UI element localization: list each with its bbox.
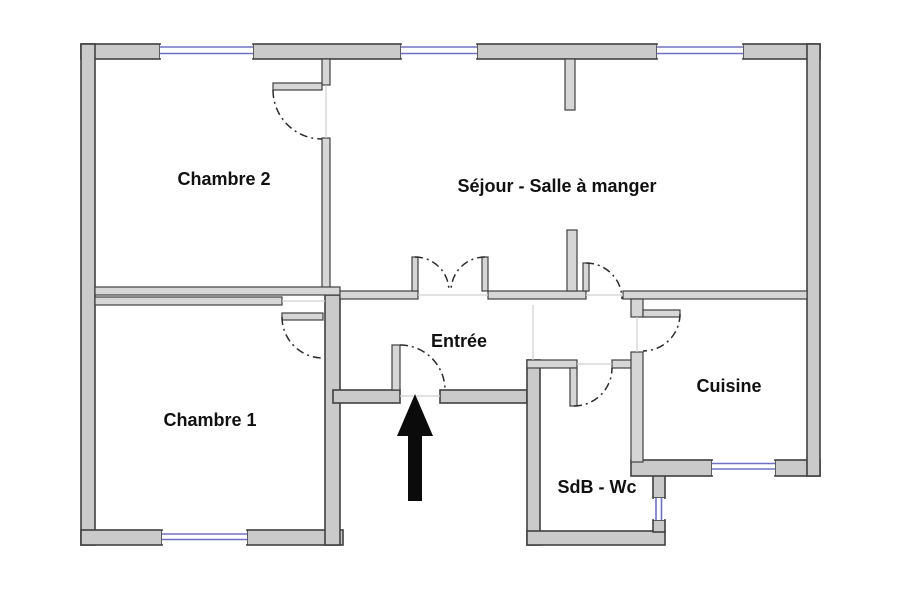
- room-label-chambre2: Chambre 2: [177, 169, 270, 189]
- door-swing-arc-entrance: [400, 345, 445, 390]
- room-label-cuisine: Cuisine: [696, 376, 761, 396]
- door-leaf-kitchen: [643, 310, 680, 317]
- interior-wall-kitchen-west: [631, 352, 643, 462]
- room-label-entree: Entrée: [431, 331, 487, 351]
- interior-wall-sejour-stub-top: [565, 59, 575, 110]
- exterior-wall-sdb-east: [653, 520, 665, 532]
- interior-wall-entree-north: [340, 291, 418, 299]
- door-leaf-double-east: [482, 257, 488, 291]
- interior-wall-chambre2-south: [95, 287, 340, 295]
- door-swing-arc-sdb: [574, 368, 612, 406]
- door-swing-arc-double-west: [415, 257, 449, 291]
- exterior-wall-bottom: [81, 530, 162, 545]
- exterior-wall-sdb-west: [527, 360, 540, 545]
- window: [654, 498, 664, 520]
- exterior-wall-top: [477, 44, 657, 59]
- interior-wall-chambre2-sejour: [322, 138, 330, 288]
- door-swing-arc-chambre1: [282, 317, 323, 358]
- interior-wall-entree-north: [488, 291, 586, 299]
- door-swing-arc-sejour-east: [586, 263, 622, 299]
- interior-wall-sejour-stub-bottom: [567, 230, 577, 291]
- door-leaf-chambre1: [282, 313, 323, 320]
- door-swing-arc-chambre2: [273, 90, 322, 139]
- exterior-wall-left: [81, 44, 95, 545]
- exterior-wall-sdb-bottom: [527, 531, 665, 545]
- door-leaf-sejour-east: [583, 263, 589, 291]
- window: [162, 531, 247, 544]
- exterior-wall-entree-south: [440, 390, 527, 403]
- door-leaf-chambre2: [273, 83, 322, 90]
- floor-plan: Chambre 2 Séjour - Salle à manger Entrée…: [0, 0, 900, 590]
- interior-wall-chambre2-sejour: [322, 59, 330, 85]
- window: [712, 461, 775, 475]
- interior-wall-chambre1-north: [95, 297, 282, 305]
- window: [160, 45, 253, 58]
- interior-wall-kitchen-west: [631, 299, 643, 317]
- door-swing-arc-kitchen: [643, 314, 680, 351]
- interior-wall-kitchen-north: [623, 291, 807, 299]
- floor-plan-svg: Chambre 2 Séjour - Salle à manger Entrée…: [0, 0, 900, 590]
- interior-wall-sdb-north: [527, 360, 577, 368]
- window: [657, 45, 743, 58]
- room-label-sdb: SdB - Wc: [558, 477, 637, 497]
- door-leaf-entrance: [392, 345, 400, 390]
- exterior-wall-entree-south: [333, 390, 400, 403]
- interior-wall-sdb-north: [612, 360, 633, 368]
- exterior-wall-top: [253, 44, 401, 59]
- room-label-sejour: Séjour - Salle à manger: [457, 176, 656, 196]
- door-leaf-sdb: [570, 368, 577, 406]
- exterior-wall-right: [807, 44, 820, 476]
- window: [401, 45, 477, 58]
- door-leaf-double-west: [412, 257, 418, 291]
- door-swing-arc-double-east: [451, 257, 485, 291]
- exterior-wall-porch-west: [325, 295, 340, 545]
- entrance-arrow-icon: [397, 394, 433, 501]
- room-label-chambre1: Chambre 1: [163, 410, 256, 430]
